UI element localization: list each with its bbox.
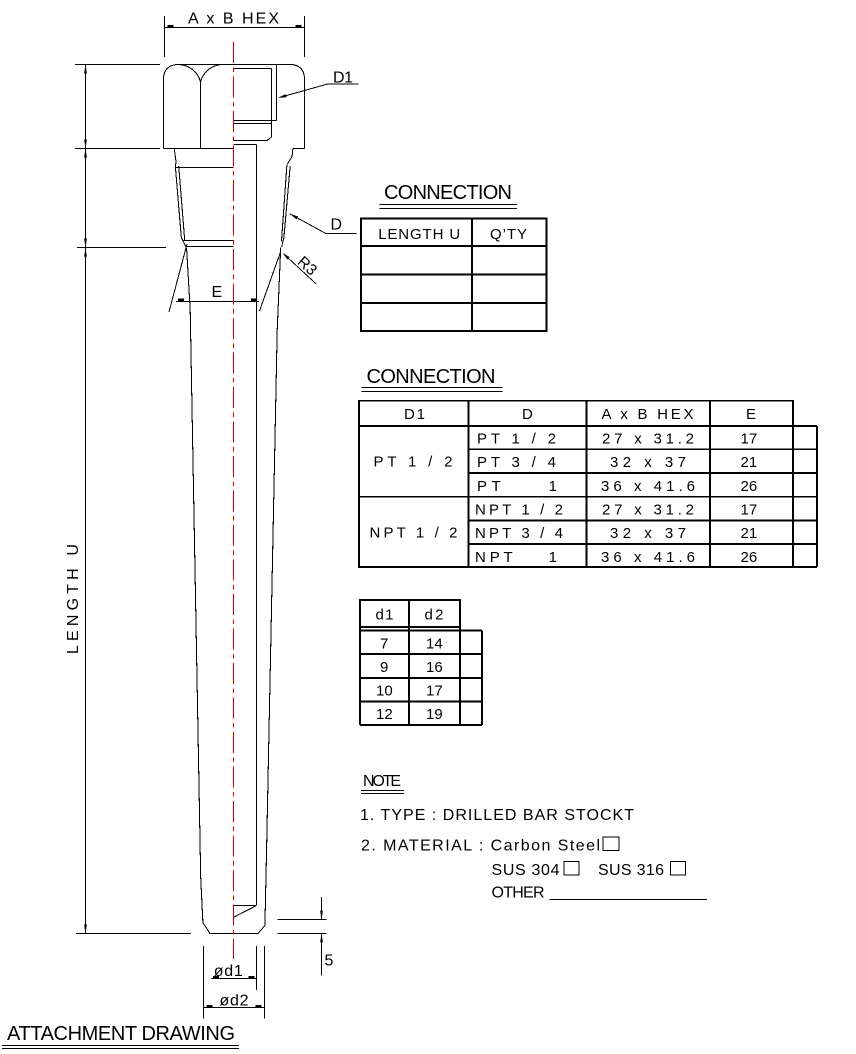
svg-text:16: 16 (426, 659, 443, 676)
svg-text:17: 17 (426, 683, 443, 700)
svg-text:SUS 304: SUS 304 (492, 862, 560, 879)
svg-text:9: 9 (380, 659, 388, 676)
svg-text:21: 21 (741, 525, 758, 542)
svg-text:PT 3 / 4: PT 3 / 4 (477, 454, 556, 471)
svg-text:10: 10 (376, 683, 393, 700)
svg-text:ød1: ød1 (214, 963, 243, 980)
svg-text:27 x 31.2: 27 x 31.2 (602, 502, 694, 519)
svg-text:CONNECTION: CONNECTION (384, 182, 512, 204)
svg-text:NOTE: NOTE (363, 773, 401, 790)
svg-text:CONNECTION: CONNECTION (367, 366, 496, 388)
svg-text:E: E (746, 406, 756, 423)
svg-text:14: 14 (426, 636, 443, 653)
svg-text:7: 7 (380, 636, 388, 653)
svg-text:D: D (331, 217, 343, 234)
svg-text:17: 17 (741, 502, 758, 519)
svg-text:D1: D1 (333, 69, 353, 86)
svg-text:LENGTH U: LENGTH U (65, 544, 82, 654)
svg-text:1. TYPE : DRILLED BAR STOCKT: 1. TYPE : DRILLED BAR STOCKT (360, 807, 634, 824)
svg-text:d2: d2 (425, 607, 444, 624)
svg-text:5: 5 (325, 953, 334, 970)
svg-text:19: 19 (426, 706, 443, 723)
svg-text:21: 21 (741, 454, 758, 471)
svg-text:36 x 41.6: 36 x 41.6 (601, 549, 695, 566)
svg-text:E: E (212, 284, 223, 301)
svg-text:NPT 1: NPT 1 (475, 549, 557, 566)
svg-text:32 x 37: 32 x 37 (610, 454, 686, 471)
svg-text:12: 12 (376, 706, 393, 723)
svg-text:NPT 3 / 4: NPT 3 / 4 (475, 525, 563, 542)
svg-text:PT 1 / 2: PT 1 / 2 (477, 431, 556, 448)
svg-text:d1: d1 (376, 607, 394, 624)
svg-text:OTHER: OTHER (492, 885, 545, 902)
svg-text:2. MATERIAL : Carbon Steel: 2. MATERIAL : Carbon Steel (361, 838, 600, 855)
svg-text:32 x 37: 32 x 37 (610, 525, 686, 542)
svg-text:26: 26 (741, 478, 758, 495)
svg-text:A x B HEX: A x B HEX (188, 11, 279, 28)
svg-text:R3: R3 (294, 253, 320, 279)
svg-text:NPT 1 / 2: NPT 1 / 2 (370, 524, 458, 541)
svg-text:A x B HEX: A x B HEX (602, 406, 694, 423)
svg-text:Q’TY: Q’TY (490, 226, 527, 243)
svg-text:ATTACHMENT DRAWING: ATTACHMENT DRAWING (7, 1023, 235, 1045)
svg-text:D: D (522, 406, 533, 423)
svg-text:17: 17 (741, 431, 758, 448)
svg-text:36 x 41.6: 36 x 41.6 (601, 478, 695, 495)
svg-text:27 x 31.2: 27 x 31.2 (602, 431, 694, 448)
svg-text:ød2: ød2 (220, 993, 249, 1010)
svg-text:PT 1: PT 1 (477, 478, 557, 495)
svg-text:SUS 316: SUS 316 (598, 862, 664, 879)
svg-text:26: 26 (741, 549, 758, 566)
svg-text:D1: D1 (404, 406, 425, 423)
svg-text:NPT 1 / 2: NPT 1 / 2 (475, 502, 563, 519)
svg-text:LENGTH U: LENGTH U (378, 226, 460, 243)
svg-text:PT 1 / 2: PT 1 / 2 (374, 454, 453, 471)
